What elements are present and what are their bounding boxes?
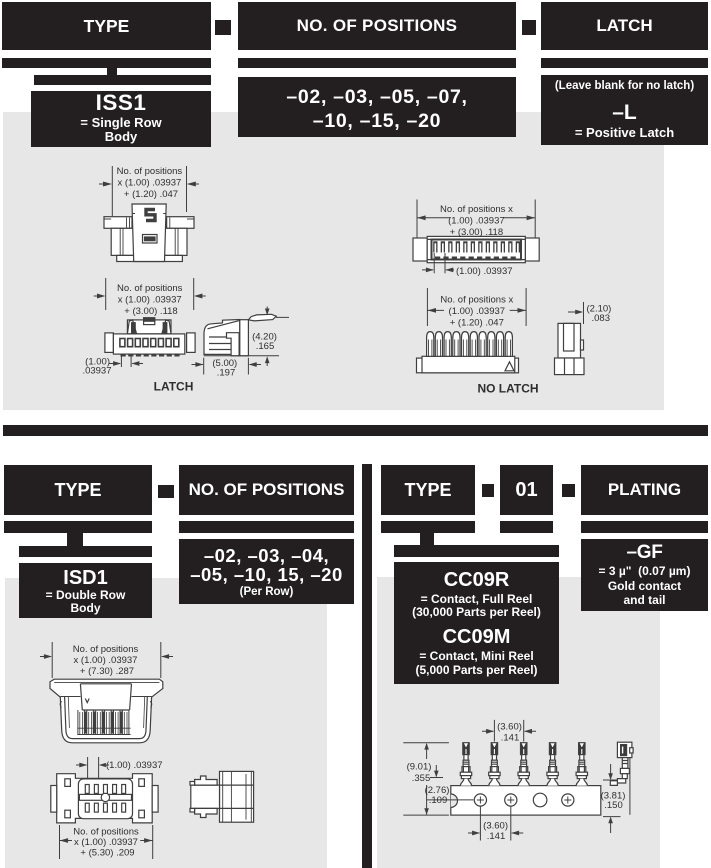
- svg-text:No. of positions: No. of positions: [73, 827, 139, 838]
- svg-text:.165: .165: [256, 341, 275, 352]
- svg-text:.141: .141: [487, 831, 506, 842]
- svg-text:.150: .150: [604, 800, 623, 811]
- svg-text:x (1.00) .03937: x (1.00) .03937: [118, 295, 182, 306]
- svg-text:.03937: .03937: [82, 366, 111, 377]
- svg-text:x (1.00) .03937: x (1.00) .03937: [117, 178, 181, 189]
- svg-text:x (1.00) .03937: x (1.00) .03937: [74, 837, 138, 848]
- svg-text:x (1.00) .03937: x (1.00) .03937: [74, 655, 138, 666]
- svg-text:(3.60): (3.60): [483, 821, 508, 832]
- svg-text:(3.60): (3.60): [497, 722, 522, 733]
- svg-text:.355: .355: [412, 773, 431, 784]
- svg-text:.141: .141: [501, 733, 520, 744]
- svg-text:No. of positions: No. of positions: [117, 166, 183, 177]
- svg-text:+ (1.20) .047: + (1.20) .047: [124, 189, 178, 200]
- svg-text:No. of positions: No. of positions: [117, 283, 183, 294]
- svg-text:(1.00) .03937: (1.00) .03937: [448, 216, 505, 227]
- svg-text:No. of positions: No. of positions: [73, 644, 139, 655]
- svg-text:+ (1.20) .047: + (1.20) .047: [450, 317, 504, 328]
- svg-text:(1.00) .03937: (1.00) .03937: [106, 760, 163, 771]
- svg-text:No. of positions x: No. of positions x: [440, 204, 513, 215]
- svg-text:(1.00) .03937: (1.00) .03937: [456, 266, 513, 277]
- svg-text:No. of positions x: No. of positions x: [440, 294, 513, 305]
- svg-text:+ (7.30) .287: + (7.30) .287: [80, 666, 134, 677]
- svg-text:NO LATCH: NO LATCH: [477, 382, 538, 396]
- svg-text:(9.01): (9.01): [407, 762, 432, 773]
- svg-text:(1.00) .03937: (1.00) .03937: [449, 306, 506, 317]
- svg-text:+ (3.00) .118: + (3.00) .118: [124, 306, 177, 317]
- svg-text:+ (5.30) .209: + (5.30) .209: [80, 848, 134, 859]
- svg-text:+ (3.00) .118: + (3.00) .118: [450, 227, 503, 238]
- svg-text:.109: .109: [429, 795, 448, 806]
- svg-text:.083: .083: [592, 313, 611, 324]
- svg-text:LATCH: LATCH: [154, 380, 194, 394]
- svg-text:.197: .197: [217, 368, 236, 379]
